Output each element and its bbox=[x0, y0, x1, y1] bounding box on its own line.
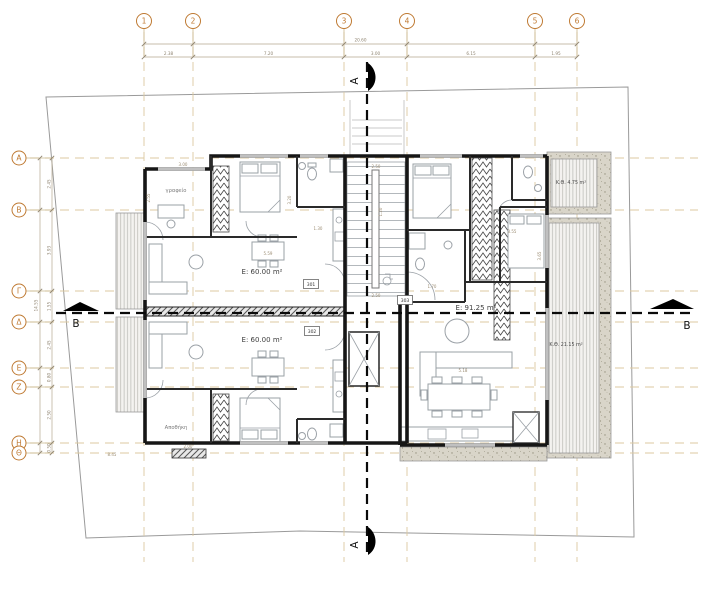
dining-table-right bbox=[428, 384, 490, 410]
dim-inline-9: 3.65 bbox=[537, 251, 542, 260]
grid-row-label-Z: Z bbox=[16, 382, 21, 391]
grid-column-label-4: 4 bbox=[405, 17, 410, 26]
dim-top-segment-0: 2.38 bbox=[164, 51, 174, 56]
dim-inline-1: 2.55 bbox=[146, 193, 151, 202]
grid-row-label-B: B bbox=[16, 205, 21, 214]
chair bbox=[258, 261, 266, 267]
grid-column-label-6: 6 bbox=[575, 17, 580, 26]
desk-chair bbox=[167, 220, 175, 228]
toilet bbox=[416, 258, 425, 270]
room-label-0: γραφείο bbox=[166, 187, 187, 194]
dining-table-lower bbox=[252, 358, 284, 376]
area-label-3: Κ.Θ. 4.75 m² bbox=[556, 180, 586, 186]
chair bbox=[452, 411, 462, 417]
dim-left-segment-6: 0.50 bbox=[46, 443, 51, 453]
dim-inline-3: 1.30 bbox=[314, 226, 323, 231]
coffee-table-upper bbox=[189, 255, 203, 269]
dim-left-total: 14.55 bbox=[34, 299, 39, 311]
door-arc-302 bbox=[325, 330, 345, 350]
door-tag-303: 303 bbox=[401, 298, 410, 304]
dim-left-segment-5: 2.50 bbox=[46, 410, 51, 420]
dim-inline-4: 5.59 bbox=[264, 251, 273, 256]
wardrobe-lower-left bbox=[213, 394, 229, 441]
pillow bbox=[261, 430, 277, 439]
grid-row-label-Θ: Θ bbox=[16, 448, 22, 457]
pillow bbox=[242, 430, 258, 439]
dim-inline-0: 3.00 bbox=[179, 162, 188, 167]
section-a-flag-bottom bbox=[368, 527, 376, 555]
dim-inline-11: 5.18 bbox=[459, 368, 468, 373]
floor-plan-drawing: 123456ABΓΔEZHΘ20.602.387.203.006.151.951… bbox=[0, 0, 704, 608]
door-arc-301 bbox=[325, 264, 345, 284]
chair bbox=[258, 377, 266, 383]
chair bbox=[421, 390, 427, 400]
coffee-table-lower bbox=[189, 345, 203, 359]
dim-left-segment-0: 2.45 bbox=[46, 179, 51, 189]
toilet-tank bbox=[308, 163, 316, 167]
party-wall bbox=[145, 307, 345, 316]
stoop-hatched bbox=[172, 449, 206, 458]
pillow bbox=[415, 166, 431, 175]
grid-column-label-3: 3 bbox=[342, 17, 347, 26]
pillow bbox=[261, 164, 277, 173]
dim-inline-7: 2.50 bbox=[372, 293, 381, 298]
grid-row-label-E: E bbox=[17, 363, 22, 372]
section-a-flag-top bbox=[368, 63, 376, 91]
dim-left-segment-3: 2.45 bbox=[46, 340, 51, 350]
shower bbox=[330, 424, 343, 437]
round-table bbox=[445, 319, 469, 343]
wardrobe-right-1 bbox=[472, 158, 492, 280]
chair bbox=[270, 261, 278, 267]
dim-top-segment-4: 1.95 bbox=[551, 51, 561, 56]
desk bbox=[158, 205, 184, 218]
toilet bbox=[308, 428, 317, 440]
area-label-1: E: 60.00 m² bbox=[242, 336, 283, 344]
area-label-0: E: 60.00 m² bbox=[242, 268, 283, 276]
section-a-label-top: A bbox=[349, 77, 361, 85]
grid-column-label-5: 5 bbox=[533, 17, 538, 26]
grid-column-label-2: 2 bbox=[191, 17, 196, 26]
dim-inline-8: 3.55 bbox=[508, 229, 517, 234]
dim-top-segment-2: 3.00 bbox=[371, 51, 381, 56]
sink bbox=[299, 163, 306, 170]
grid-column-label-1: 1 bbox=[142, 17, 147, 26]
door-tag-301: 301 bbox=[307, 282, 316, 288]
door-tag-302: 302 bbox=[308, 329, 317, 335]
room-label-1: Αποθήκη bbox=[165, 424, 188, 431]
area-label-2: E: 91.25 m² bbox=[456, 304, 497, 312]
chair bbox=[270, 377, 278, 383]
pillow bbox=[433, 166, 449, 175]
dim-left-segment-1: 3.93 bbox=[46, 246, 51, 256]
pillow bbox=[510, 216, 524, 224]
dim-top-segment-3: 6.15 bbox=[466, 51, 476, 56]
toilet bbox=[308, 168, 317, 180]
stair-handrail bbox=[372, 170, 379, 288]
chair bbox=[432, 377, 442, 383]
area-label-4: Κ.Θ. 21.15 m² bbox=[549, 342, 582, 348]
pillow bbox=[242, 164, 258, 173]
dim-inline-13: 8.45 bbox=[108, 452, 117, 457]
toilet bbox=[524, 166, 533, 178]
section-b-flag-left bbox=[63, 302, 99, 311]
chair bbox=[432, 411, 442, 417]
grid-row-label-Δ: Δ bbox=[16, 317, 22, 326]
wardrobe-upper-left bbox=[213, 166, 229, 232]
dim-top-segment-1: 7.20 bbox=[264, 51, 274, 56]
sink bbox=[535, 185, 542, 192]
dim-left-segment-2: 1.55 bbox=[46, 302, 51, 312]
dim-top-total: 20.60 bbox=[355, 38, 367, 43]
chair bbox=[270, 351, 278, 357]
chair bbox=[452, 377, 462, 383]
floor-plan-canvas: 123456ABΓΔEZHΘ20.602.387.203.006.151.951… bbox=[0, 0, 704, 608]
balcony-left-lower bbox=[116, 317, 145, 412]
entry-steps bbox=[350, 100, 404, 155]
dim-left-segment-4: 0.80 bbox=[46, 373, 51, 383]
walkway-bottom-concrete bbox=[400, 447, 547, 461]
dim-inline-6: 1.20 bbox=[378, 207, 383, 216]
section-b-label-left: B bbox=[72, 318, 79, 330]
chair bbox=[258, 351, 266, 357]
section-a-label-bottom: A bbox=[349, 541, 361, 549]
dim-inline-2: 3.20 bbox=[287, 195, 292, 204]
balcony-left-upper bbox=[116, 213, 145, 309]
chair bbox=[491, 390, 497, 400]
grid-row-label-A: A bbox=[16, 153, 22, 162]
terrace-right-deck bbox=[549, 223, 599, 453]
section-b-flag-right bbox=[650, 299, 694, 309]
chair bbox=[472, 377, 482, 383]
sink bbox=[444, 241, 452, 249]
dim-inline-12: 2.00 bbox=[184, 444, 193, 449]
dim-inline-5: 2.50 bbox=[372, 164, 381, 169]
sink bbox=[299, 433, 306, 440]
shower bbox=[330, 159, 343, 172]
sofa-upper-seat bbox=[149, 282, 187, 294]
sofa-lower-seat bbox=[149, 322, 187, 334]
section-b-label-right: B bbox=[683, 320, 690, 332]
chair bbox=[472, 411, 482, 417]
shower bbox=[409, 233, 425, 249]
dim-inline-10: 1.70 bbox=[428, 284, 437, 289]
pillow bbox=[527, 216, 541, 224]
